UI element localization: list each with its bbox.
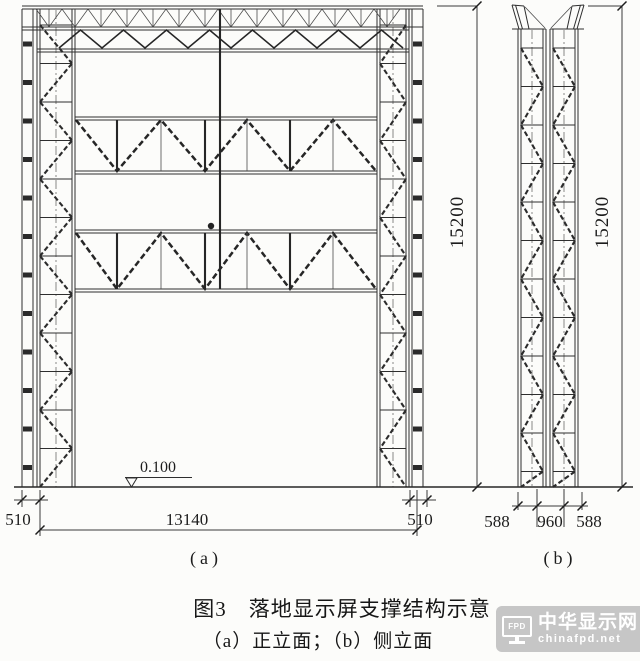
sublabel-side: (b)	[544, 548, 577, 569]
figure-canvas: 0.100 15200 15200 510 13140 510 588 960 …	[0, 0, 640, 661]
dim-side-mid: 960	[537, 512, 563, 531]
dim-side-left: 588	[484, 512, 510, 531]
sublabel-front: (a)	[190, 548, 222, 569]
dim-side-right: 588	[576, 512, 602, 531]
figure-caption-sublabels: （a）正立面；（b）侧立面	[203, 626, 433, 653]
level-mark-label: 0.100	[140, 459, 176, 476]
dim-front-span: 13140	[166, 510, 209, 529]
dim-front-left: 510	[5, 510, 31, 529]
figure-caption-title: 图3 落地显示屏支撑结构示意	[193, 593, 491, 623]
dim-front-right: 510	[407, 510, 433, 529]
dim-height-front: 15200	[447, 196, 468, 249]
structural-drawing: 0.100 15200 15200 510 13140 510 588 960 …	[0, 0, 640, 661]
watermark-site-url: chinafpd.net	[538, 634, 638, 645]
dim-height-side: 15200	[592, 196, 613, 249]
side-elevation	[512, 5, 584, 487]
annotations: 0.100 15200 15200 510 13140 510 588 960 …	[5, 196, 613, 569]
front-elevation	[14, 6, 633, 487]
fpd-icon-label: FPD	[508, 622, 526, 631]
watermark-chinafpd: FPD 中华显示网 chinafpd.net	[496, 606, 640, 652]
watermark-site-name: 中华显示网	[538, 613, 638, 632]
fpd-monitor-icon: FPD	[502, 614, 532, 644]
